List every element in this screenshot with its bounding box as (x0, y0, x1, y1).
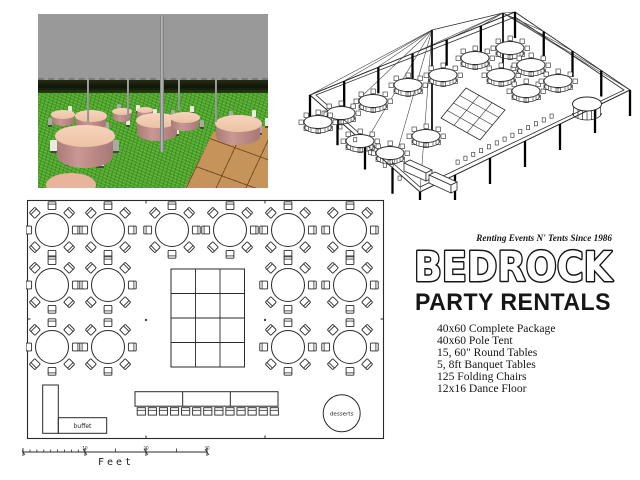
chair-symbol (104, 367, 112, 375)
banquet-table (135, 392, 278, 407)
round-table-symbol (334, 269, 367, 302)
round-table-symbol (214, 214, 247, 247)
chair-symbol (120, 324, 131, 335)
chair-symbol (128, 281, 136, 289)
shape (226, 250, 234, 258)
round-table-with-chairs (144, 202, 200, 258)
chair-symbol (85, 359, 96, 370)
shape (517, 59, 545, 72)
chair-symbol (539, 79, 543, 84)
chair-symbol (168, 250, 176, 258)
shape (300, 242, 311, 253)
chair-symbol (322, 281, 330, 289)
chair-symbol (120, 359, 131, 370)
scale-tick-label: 10 (82, 446, 88, 451)
shape (72, 226, 80, 234)
package-list: 40x60 Complete Package 40x60 Pole Tent 1… (437, 323, 556, 394)
chair-symbol (346, 305, 354, 313)
chair-symbol (85, 297, 96, 308)
shape (250, 226, 258, 234)
chair-3d (50, 140, 57, 153)
chair-symbol (327, 359, 338, 370)
shape (149, 207, 160, 218)
chair-symbol (362, 324, 373, 335)
round-table-symbol (92, 214, 125, 247)
shape (85, 359, 96, 370)
round-table-with-chairs (322, 319, 378, 375)
chair-symbol (299, 120, 303, 125)
shape (85, 262, 96, 273)
shape (322, 226, 330, 234)
desserts-table: desserts (323, 395, 360, 432)
chair-3d (200, 120, 204, 129)
shape (80, 343, 88, 351)
chair-symbol (182, 408, 190, 415)
chair-symbol (423, 83, 427, 88)
chair-symbol (327, 242, 338, 253)
chair-symbol (72, 343, 80, 351)
chair-symbol (148, 408, 156, 415)
shape (80, 226, 88, 234)
chair-symbol (519, 129, 522, 133)
shape (48, 202, 56, 210)
chair-symbol (472, 152, 475, 156)
chair-symbol (362, 242, 373, 253)
shape (120, 297, 131, 308)
chair-symbol (400, 144, 404, 149)
chair-symbol (207, 242, 218, 253)
chair-symbol (300, 242, 311, 253)
shape (104, 305, 112, 313)
chair-symbol (248, 408, 256, 415)
chair-symbol (556, 69, 560, 74)
chair-symbol (424, 73, 428, 78)
chair-symbol (573, 79, 577, 84)
shape (376, 147, 404, 160)
chair-symbol (568, 72, 572, 77)
chair-symbol (29, 359, 40, 370)
chair-symbol (48, 202, 56, 210)
chair-symbol (412, 127, 416, 132)
shape (461, 52, 489, 65)
chair-symbol (259, 408, 267, 415)
shape (308, 226, 316, 234)
chair-symbol (511, 133, 514, 137)
chair-symbol (495, 141, 498, 145)
chair-symbol (168, 202, 176, 210)
round-table-with-chairs (80, 257, 136, 313)
round-table-with-chairs (80, 319, 136, 375)
shape (64, 207, 75, 218)
round-table-with-chairs (260, 319, 316, 375)
shape (29, 324, 40, 335)
shape (322, 281, 330, 289)
shape (26, 343, 32, 351)
shape (346, 367, 354, 375)
shape (370, 281, 378, 289)
round-table-with-chairs (80, 202, 136, 258)
shape (149, 242, 160, 253)
chair-symbol (120, 207, 131, 218)
shape (300, 324, 311, 335)
wireframe-round-table (354, 89, 392, 113)
chair-symbol (48, 367, 56, 375)
chair-symbol (520, 39, 524, 44)
tent-pole-3d (87, 76, 89, 122)
buffet-label: buffet (74, 423, 92, 430)
round-table-with-chairs (260, 257, 316, 313)
chair-symbol (544, 72, 548, 77)
shape (265, 324, 276, 335)
shape (308, 343, 316, 351)
chair-symbol (327, 262, 338, 273)
chair-symbol (371, 89, 375, 94)
chair-symbol (508, 36, 512, 41)
chair-symbol (542, 118, 545, 122)
shape (80, 281, 88, 289)
chair-symbol (265, 242, 276, 253)
chair-symbol (284, 257, 292, 265)
shape (260, 343, 268, 351)
round-table-3d (55, 125, 115, 147)
chair-symbol (456, 56, 460, 61)
shape (104, 202, 112, 210)
chair-symbol (388, 141, 392, 146)
chair-symbol (64, 324, 75, 335)
shape (300, 297, 311, 308)
chair-symbol (85, 324, 96, 335)
shape (512, 85, 540, 98)
round-table-symbol (272, 214, 305, 247)
round-table-with-chairs (26, 257, 80, 313)
shape (120, 262, 131, 273)
shape (412, 130, 440, 143)
shape (362, 324, 373, 335)
round-table-symbol (334, 331, 367, 364)
chair-symbol (260, 226, 268, 234)
center-pole-dot (145, 319, 147, 321)
chair-symbol (534, 122, 537, 126)
chair-symbol (341, 139, 345, 144)
chair-symbol (29, 297, 40, 308)
chair-symbol (265, 324, 276, 335)
chair-symbol (441, 134, 445, 139)
chair-symbol (64, 297, 75, 308)
shape (300, 359, 311, 370)
wireframe-round-table (491, 36, 529, 60)
shape (265, 262, 276, 273)
chair-symbol (284, 305, 292, 313)
chair-symbol (370, 343, 378, 351)
shape (327, 324, 338, 335)
chair-symbol (308, 226, 316, 234)
wireframe-round-table (424, 63, 462, 87)
tent-3d-render (38, 14, 268, 188)
chair-symbol (120, 262, 131, 273)
shape (48, 257, 56, 265)
shape (104, 319, 112, 327)
chair-symbol (104, 202, 112, 210)
round-table-symbol (272, 269, 305, 302)
chair-symbol (250, 226, 258, 234)
chair-symbol (370, 132, 374, 137)
chair-symbol (72, 281, 80, 289)
chair-symbol (204, 408, 212, 415)
shape (308, 281, 316, 289)
chair-symbol (464, 156, 467, 160)
shape (346, 135, 374, 148)
chair-symbol (482, 73, 486, 78)
shape (284, 202, 292, 210)
chair-symbol (327, 104, 331, 109)
chair-symbol (260, 343, 268, 351)
shape (327, 359, 338, 370)
round-table-symbol (36, 331, 69, 364)
chair-symbol (48, 305, 56, 313)
chair-symbol (376, 144, 380, 149)
chair-symbol (226, 408, 234, 415)
chair-symbol (358, 129, 362, 134)
shape (128, 226, 136, 234)
chair-symbol (424, 124, 428, 129)
wireframe-round-table (299, 110, 337, 134)
round-table-3d (51, 110, 75, 119)
round-table-symbol (156, 214, 189, 247)
chair-symbol (456, 160, 459, 164)
shape (168, 250, 176, 258)
chair-symbol (316, 110, 320, 115)
banquet-tables-row (135, 392, 278, 415)
shape (284, 319, 292, 327)
shape (265, 297, 276, 308)
shape (207, 207, 218, 218)
shape (362, 262, 373, 273)
chair-symbol (29, 324, 40, 335)
chair-symbol (265, 207, 276, 218)
shape (362, 359, 373, 370)
shape (573, 97, 602, 111)
chair-symbol (512, 63, 516, 68)
chair-symbol (394, 76, 398, 81)
chair-symbol (64, 359, 75, 370)
chair-symbol (461, 49, 465, 54)
chair-symbol (346, 367, 354, 375)
chair-symbol (541, 56, 545, 61)
shape (192, 226, 200, 234)
chair-symbol (383, 92, 387, 97)
round-table-3d (170, 112, 200, 123)
chair-symbol (359, 92, 363, 97)
chair-symbol (265, 262, 276, 273)
chair-symbol (64, 207, 75, 218)
chair-symbol (300, 262, 311, 273)
dance-floor-grid (171, 269, 245, 367)
shape (284, 305, 292, 313)
flyer-canvas: buffet desserts 10 20 30 Feet Renting Ev… (0, 0, 640, 480)
shape (327, 297, 338, 308)
chair-symbol (159, 408, 167, 415)
shape (72, 343, 80, 351)
chair-symbol (429, 66, 433, 71)
chair-symbol (128, 343, 136, 351)
shape (202, 226, 210, 234)
round-table-with-chairs (322, 202, 378, 258)
shape (487, 69, 515, 82)
chair-symbol (436, 127, 440, 132)
chair-symbol (265, 297, 276, 308)
chair-symbol (242, 207, 253, 218)
chair-symbol (368, 150, 371, 154)
chair-symbol (354, 138, 357, 142)
chair-symbol (496, 39, 500, 44)
chair-symbol (339, 101, 343, 106)
chair-symbol (308, 281, 316, 289)
shape (304, 116, 332, 129)
tent-pole-3d (178, 80, 180, 110)
shape (260, 281, 268, 289)
shape (48, 305, 56, 313)
chair-symbol (85, 262, 96, 273)
chair-symbol (406, 73, 410, 78)
chair-symbol (346, 257, 354, 265)
chair-symbol (550, 114, 553, 118)
center-pole-dot (264, 319, 266, 321)
chair-symbol (29, 262, 40, 273)
shape (29, 207, 40, 218)
round-table-symbol (92, 269, 125, 302)
chair-symbol (346, 319, 354, 327)
shape (26, 281, 32, 289)
shape (64, 297, 75, 308)
chair-symbol (517, 56, 521, 61)
chair-symbol (490, 56, 494, 61)
chair-symbol (346, 132, 350, 137)
shape (104, 367, 112, 375)
chair-symbol (525, 46, 529, 51)
chair-symbol (322, 343, 330, 351)
shape (85, 324, 96, 335)
chair-symbol (80, 281, 88, 289)
shape (362, 297, 373, 308)
chair-symbol (354, 99, 358, 104)
shape (284, 257, 292, 265)
chair-symbol (304, 113, 308, 118)
shape (327, 242, 338, 253)
shape (26, 226, 32, 234)
wireframe-round-table (371, 141, 409, 165)
round-table-with-chairs (202, 202, 258, 258)
shape (300, 262, 311, 273)
shape (85, 297, 96, 308)
chair-3d (112, 140, 119, 153)
wireframe-desserts-table (573, 97, 602, 120)
chair-symbol (85, 207, 96, 218)
chair-symbol (184, 242, 195, 253)
shape (104, 257, 112, 265)
chair-symbol (398, 176, 401, 180)
shape (48, 319, 56, 327)
chair-symbol (333, 120, 337, 125)
chair-symbol (192, 226, 200, 234)
round-table-with-chairs (322, 257, 378, 313)
chair-symbol (260, 281, 268, 289)
chair-symbol (184, 207, 195, 218)
chair-symbol (370, 281, 378, 289)
chair-symbol (284, 202, 292, 210)
shape (120, 324, 131, 335)
chair-symbol (144, 226, 152, 234)
shape (362, 207, 373, 218)
chair-symbol (362, 297, 373, 308)
chair-symbol (170, 408, 178, 415)
chair-symbol (26, 281, 32, 289)
chair-symbol (300, 297, 311, 308)
wireframe-round-table (407, 124, 445, 148)
shape (359, 95, 387, 108)
shape (85, 242, 96, 253)
chair-symbol (407, 134, 411, 139)
shape (346, 202, 354, 210)
shape (322, 343, 330, 351)
scale-tick-label: 30 (204, 446, 210, 451)
shape (128, 281, 136, 289)
shape (120, 207, 131, 218)
chair-symbol (529, 53, 533, 58)
chair-symbol (202, 226, 210, 234)
chair-symbol (327, 297, 338, 308)
shape (265, 242, 276, 253)
shape (72, 281, 80, 289)
round-table-symbol (36, 269, 69, 302)
round-table-symbol (92, 331, 125, 364)
shape (184, 242, 195, 253)
chair-symbol (503, 137, 506, 141)
round-table-with-chairs (260, 202, 316, 258)
tree-line (38, 80, 268, 93)
shape (64, 324, 75, 335)
shape (29, 359, 40, 370)
chair-symbol (441, 63, 445, 68)
chair-symbol (362, 207, 373, 218)
tent-pole-3d (127, 78, 129, 118)
chair-symbol (418, 76, 422, 81)
chair-symbol (370, 226, 378, 234)
shape (265, 207, 276, 218)
chair-symbol (388, 99, 392, 104)
chair-symbol (226, 202, 234, 210)
chair-symbol (149, 242, 160, 253)
shape (64, 359, 75, 370)
round-table-3d (75, 110, 107, 122)
shape (120, 242, 131, 253)
chair-symbol (362, 262, 373, 273)
shape (242, 242, 253, 253)
shape (346, 305, 354, 313)
shape (207, 242, 218, 253)
chair-symbol (284, 367, 292, 375)
package-item: 5, 8ft Banquet Tables (437, 359, 556, 371)
chair-symbol (64, 242, 75, 253)
round-table-symbol (334, 214, 367, 247)
chair-symbol (473, 46, 477, 51)
tent-pole-3d (215, 76, 217, 122)
chair-symbol (72, 226, 80, 234)
chair-symbol (389, 83, 393, 88)
chair-3d (265, 118, 268, 128)
chair-symbol (26, 343, 32, 351)
round-table-symbol (272, 331, 305, 364)
package-item: 12x16 Dance Floor (437, 383, 556, 395)
